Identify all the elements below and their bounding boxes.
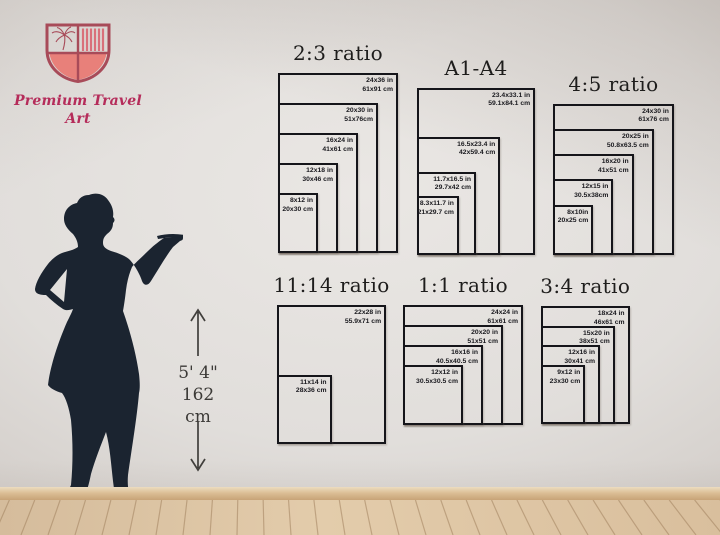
size-label: 20x30 in51x76cm (344, 107, 373, 124)
size-label: 24x36 in61x91 cm (362, 77, 393, 94)
size-label: 12x15 in30.5x38cm (574, 183, 608, 200)
baseboard (0, 487, 720, 501)
size-label: 16.5x23.4 in42x59.4 cm (457, 141, 495, 158)
arrow-down-icon (168, 418, 228, 476)
size-label: 16x24 in41x61 cm (322, 137, 353, 154)
floor-lines (0, 500, 720, 535)
brand-logo: Premium Travel Art (8, 22, 148, 128)
size-label: 12x18 in30x46 cm (302, 167, 333, 184)
size-rect: 11x14 in28x36 cm (277, 375, 332, 444)
arrow-up-icon (168, 306, 228, 358)
size-rect: 12x12 in30.5x30.5 cm (403, 365, 463, 425)
size-rect: 8x12 in20x30 cm (278, 193, 318, 253)
size-label: 12x12 in30.5x30.5 cm (416, 369, 458, 386)
size-label: 16x16 in40.5x40.5 cm (436, 349, 478, 366)
chart-title-ratio-4-5: 4:5 ratio (528, 71, 699, 97)
woman-silhouette (33, 192, 183, 507)
size-label: 24x30 in61x76 cm (638, 108, 669, 125)
size-label: 8x10in20x25 cm (558, 209, 589, 226)
size-label: 8.3x11.7 in21x29.7 cm (418, 200, 454, 217)
size-label: 24x24 in61x61 cm (487, 309, 518, 326)
size-rect: 8x10in20x25 cm (553, 205, 593, 255)
size-label: 18x24 in46x61 cm (594, 310, 625, 327)
chart-title-ratio-3-4: 3:4 ratio (516, 273, 655, 299)
size-label: 11x14 in28x36 cm (296, 379, 327, 396)
palm-tree-icon (52, 27, 75, 50)
size-label: 23.4x33.1 in59.1x84.1 cm (488, 92, 530, 109)
size-guide-poster: Premium Travel Art 5' 4" 162 cm 2:3 rati… (0, 0, 720, 535)
height-imperial: 5' 4" (168, 362, 228, 384)
size-label: 20x25 in50.8x63.5 cm (607, 133, 649, 150)
size-label: 20x20 in51x51 cm (467, 329, 498, 346)
size-label: 15x20 in38x51 cm (579, 330, 610, 347)
size-rect: 8.3x11.7 in21x29.7 cm (417, 196, 459, 255)
brand-name: Premium Travel Art (8, 92, 148, 128)
size-label: 9x12 in23x30 cm (550, 369, 581, 386)
size-label: 11.7x16.5 in29.7x42 cm (433, 176, 471, 193)
size-label: 16x20 in41x51 cm (598, 158, 629, 175)
size-label: 12x16 in30x41 cm (564, 349, 595, 366)
size-label: 22x28 in55.9x71 cm (345, 309, 381, 326)
size-label: 8x12 in20x30 cm (282, 197, 313, 214)
size-rect: 9x12 in23x30 cm (541, 365, 585, 424)
height-marker: 5' 4" 162 cm (168, 306, 228, 476)
shield-crest-icon (43, 22, 113, 84)
wood-floor (0, 500, 720, 535)
